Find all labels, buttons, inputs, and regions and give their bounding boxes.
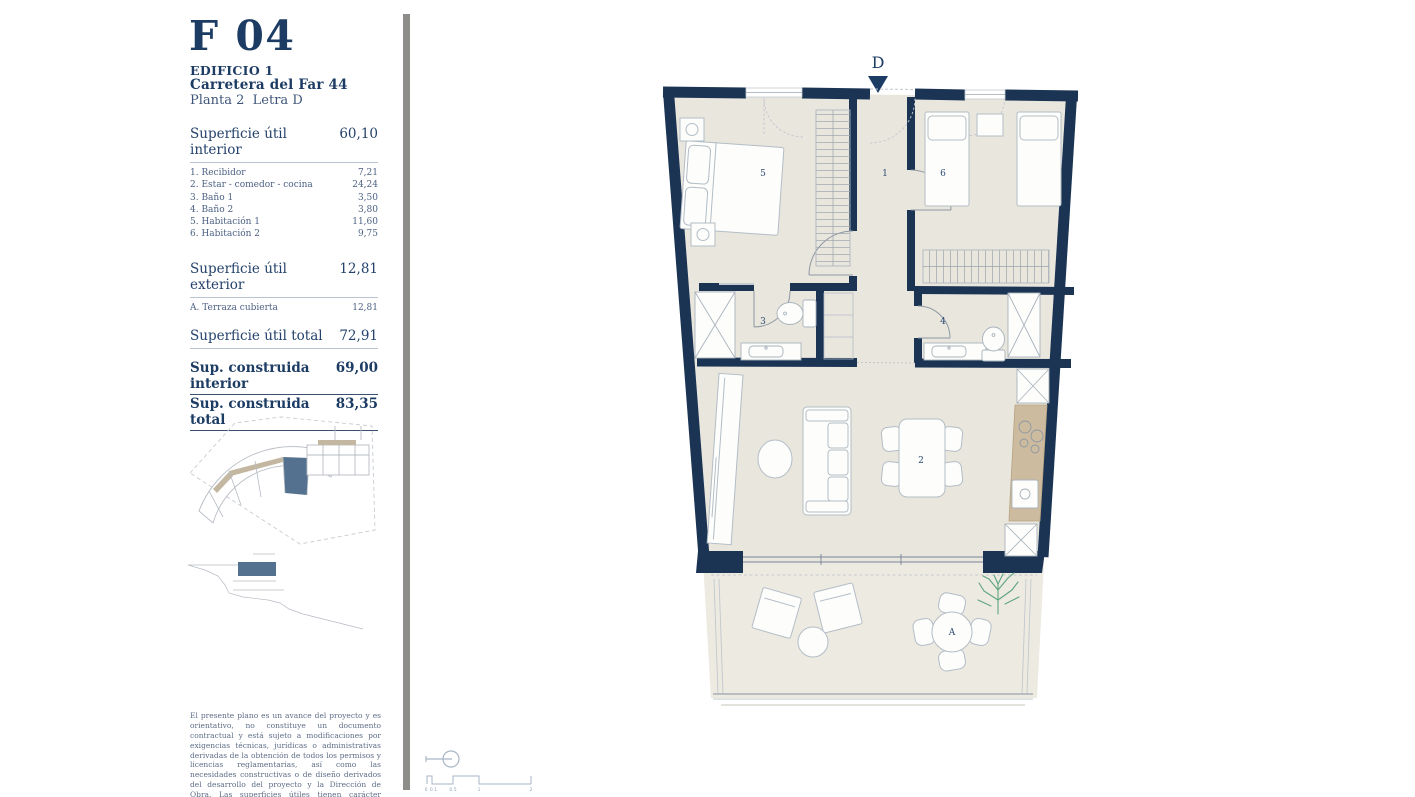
address: Carretera del Far 44 — [190, 77, 348, 93]
section-value: 72,91 — [339, 328, 378, 344]
interior-area-table: Superficie útil interior 60,10 1. Recibi… — [190, 126, 378, 241]
built-interior-row: Sup. construida interior69,00 — [190, 359, 378, 395]
entrance-marker: D — [868, 53, 888, 93]
floor-plan: D — [653, 48, 1093, 710]
section-sketch — [188, 554, 363, 629]
opening-dashes — [857, 363, 915, 364]
double-bed — [680, 141, 784, 236]
area-row: 3. Baño 13,50 — [190, 192, 378, 204]
section-header: Superficie útil exterior 12,81 — [190, 261, 378, 298]
highlighted-floor — [238, 562, 276, 576]
svg-text:1: 1 — [478, 787, 481, 793]
floor-plan-sheet: F 04 EDIFICIO 1 Carretera del Far 44 Pla… — [0, 0, 1415, 797]
building-name: EDIFICIO 1 — [190, 63, 274, 78]
scale-bar-group: 0 0.1 0.5 1 2 — [418, 745, 578, 797]
highlighted-unit — [283, 457, 309, 495]
svg-text:2: 2 — [530, 787, 533, 793]
unit-code: F 04 — [189, 12, 295, 60]
section-label: Superficie útil interior — [190, 126, 339, 158]
area-row: 5. Habitación 111,60 — [190, 216, 378, 228]
nightstand — [977, 114, 1003, 136]
entrance-arrow-icon — [868, 76, 888, 93]
bedroom2-wardrobe — [923, 250, 1049, 283]
toilet — [803, 300, 816, 327]
area-row: 6. Habitación 29,75 — [190, 228, 378, 240]
toilet — [982, 350, 1005, 361]
section-label: Superficie útil total — [190, 328, 323, 344]
area-row: 1. Recibidor7,21 — [190, 167, 378, 179]
section-label: Superficie útil exterior — [190, 261, 339, 293]
total-area-row: Superficie útil total 72,91 — [190, 328, 378, 349]
section-value: 12,81 — [339, 261, 378, 277]
terrace-pouf — [798, 627, 828, 657]
room-label-bed2: 6 — [940, 169, 946, 179]
rect-building — [307, 426, 369, 475]
area-row: A. Terraza cubierta12,81 — [190, 302, 378, 314]
svg-text:0: 0 — [425, 787, 428, 793]
sofa — [803, 407, 851, 515]
svg-text:D: D — [872, 53, 885, 72]
compass-icon — [426, 751, 459, 767]
room-label-bath1: 3 — [760, 317, 766, 327]
area-row: 4. Baño 23,80 — [190, 204, 378, 216]
disclaimer-paragraph: El presente plano es un avance del proye… — [190, 711, 381, 797]
divider-bar — [403, 14, 410, 790]
area-row: 2. Estar - comedor - cocina24,24 — [190, 179, 378, 191]
room-label-hall: 1 — [882, 169, 888, 179]
floor-letter: Planta 2 Letra D — [190, 93, 303, 108]
kitchen-sink — [1012, 480, 1038, 508]
svg-text:0.5: 0.5 — [449, 787, 456, 793]
disclaimer: El presente plano es un avance del proye… — [190, 711, 381, 797]
section-value: 60,10 — [339, 126, 378, 142]
room-label-bed1: 5 — [760, 169, 766, 179]
section-header: Superficie útil interior 60,10 — [190, 126, 378, 163]
wall-block — [696, 551, 743, 573]
hall-wardrobe — [816, 110, 850, 266]
entrance-threshold — [870, 89, 915, 90]
terrace-floor — [703, 562, 1044, 698]
room-label-living: 2 — [918, 456, 924, 466]
svg-text:0.1: 0.1 — [430, 787, 437, 793]
room-label-bath2: 4 — [940, 317, 946, 327]
exterior-area-table: Superficie útil exterior 12,81 A. Terraz… — [190, 261, 378, 314]
room-label-terrace: A — [948, 628, 956, 638]
site-plan-thumbnail — [185, 413, 385, 663]
coffee-table — [758, 440, 792, 478]
scale-bar: 0 0.1 0.5 1 2 — [425, 776, 533, 793]
